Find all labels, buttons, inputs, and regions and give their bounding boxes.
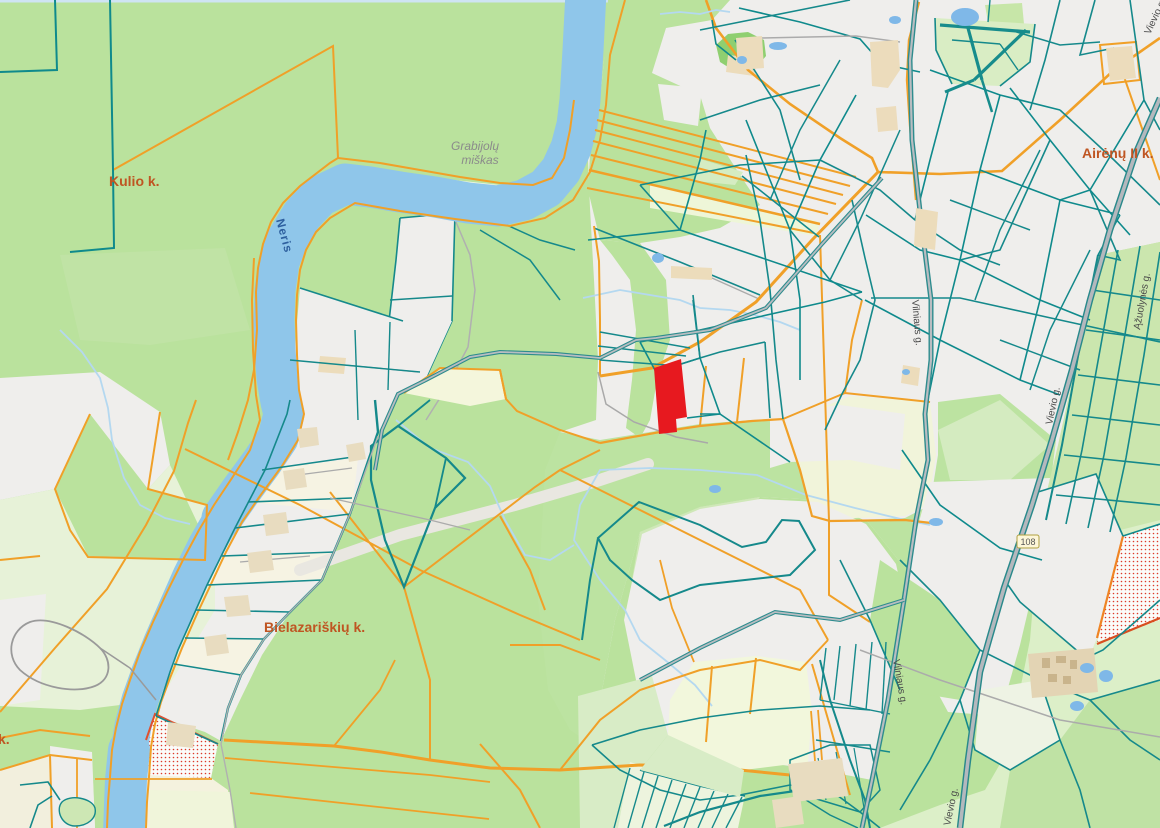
svg-text:Kulio k.: Kulio k.	[109, 173, 160, 189]
svg-text:miškas: miškas	[461, 153, 498, 167]
svg-text:Bielazariškių k.: Bielazariškių k.	[264, 619, 365, 635]
svg-text:Airėnų II k.: Airėnų II k.	[1082, 145, 1154, 161]
svg-text:108: 108	[1020, 537, 1035, 547]
svg-text:k.: k.	[0, 731, 10, 747]
svg-text:Grabijolų: Grabijolų	[451, 139, 499, 153]
